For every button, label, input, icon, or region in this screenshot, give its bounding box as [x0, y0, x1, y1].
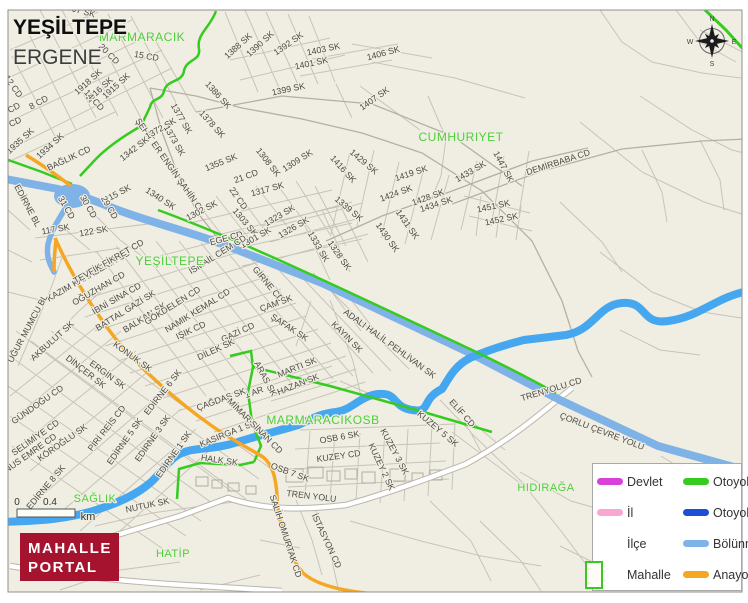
legend-label: İlçe — [627, 537, 683, 551]
map-stage: 1907 SK15 CD20 CD1918 SK1916 SK1915 SK14… — [0, 0, 748, 598]
area-label: SAĞLIK — [74, 492, 117, 505]
legend: DevletOtoyol-YİDİlOtoyolİlçeBölünmüş YMa… — [592, 463, 742, 591]
legend-label: Mahalle — [627, 568, 683, 582]
area-label: CUMHURIYET — [419, 130, 504, 144]
area-label: MARMARACIKOSB — [266, 413, 379, 427]
scale-unit: km — [81, 511, 96, 523]
logo[interactable]: MAHALLE PORTAL — [20, 533, 119, 581]
page-title: YEŞİLTEPE — [13, 16, 127, 39]
legend-swatch-otoyol-yi-d — [683, 478, 709, 485]
legend-row: DevletOtoyol-YİD — [597, 466, 741, 497]
legend-swatch-anayol — [683, 571, 709, 578]
scale-end: 0.4 — [43, 497, 57, 508]
legend-label: Bölünmüş Y — [713, 537, 748, 551]
legend-row: İlçeBölünmüş Y — [597, 528, 741, 559]
compass-w: W — [687, 39, 694, 46]
area-label: YEŞİLTEPE — [136, 254, 205, 268]
legend-row: MahalleAnayol — [597, 559, 741, 590]
legend-row: İlOtoyol — [597, 497, 741, 528]
legend-swatch-devlet — [597, 478, 623, 485]
legend-swatch-i-l — [597, 509, 623, 516]
scale-zero: 0 — [14, 497, 20, 508]
compass-s: S — [710, 61, 715, 68]
legend-label: Anayol — [713, 568, 748, 582]
legend-label: Devlet — [627, 475, 683, 489]
area-label: HIDIRAĞA — [517, 481, 574, 494]
logo-line1: MAHALLE — [28, 540, 119, 559]
legend-label: İl — [627, 506, 683, 520]
legend-swatch-i-l-e — [597, 540, 623, 547]
legend-label: Otoyol — [713, 506, 748, 520]
compass-e: E — [732, 39, 737, 46]
district-title: ERGENE — [13, 46, 102, 69]
logo-line2: PORTAL — [28, 559, 119, 578]
legend-swatch-b-l-nm-y — [683, 540, 709, 547]
legend-label: Otoyol-YİD — [713, 475, 748, 489]
compass-n: N — [709, 16, 714, 23]
legend-swatch-mahalle — [585, 561, 603, 589]
legend-swatch-otoyol — [683, 509, 709, 516]
area-label: HATİP — [156, 547, 190, 560]
